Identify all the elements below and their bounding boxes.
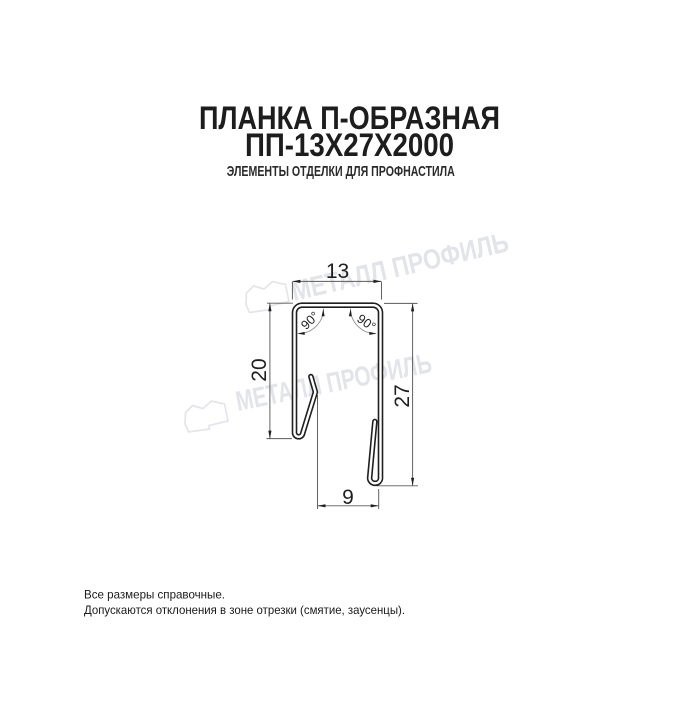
svg-text:МЕТАЛЛ ПРОФИЛЬ: МЕТАЛЛ ПРОФИЛЬ	[288, 226, 511, 307]
svg-text:20: 20	[248, 358, 271, 381]
svg-text:90°: 90°	[354, 311, 378, 334]
svg-text:90°: 90°	[298, 308, 322, 332]
svg-text:27: 27	[391, 384, 414, 407]
svg-text:Все размеры справочные.: Все размеры справочные.	[84, 588, 225, 602]
svg-text:9: 9	[342, 486, 354, 509]
svg-text:ЭЛЕМЕНТЫ ОТДЕЛКИ ДЛЯ ПРОФНАСТИ: ЭЛЕМЕНТЫ ОТДЕЛКИ ДЛЯ ПРОФНАСТИЛА	[227, 164, 455, 180]
svg-text:13: 13	[326, 260, 349, 283]
svg-text:ПП-13Х27Х2000: ПП-13Х27Х2000	[245, 127, 454, 163]
svg-text:Допускаются отклонения в зоне: Допускаются отклонения в зоне отрезки (с…	[84, 603, 405, 617]
